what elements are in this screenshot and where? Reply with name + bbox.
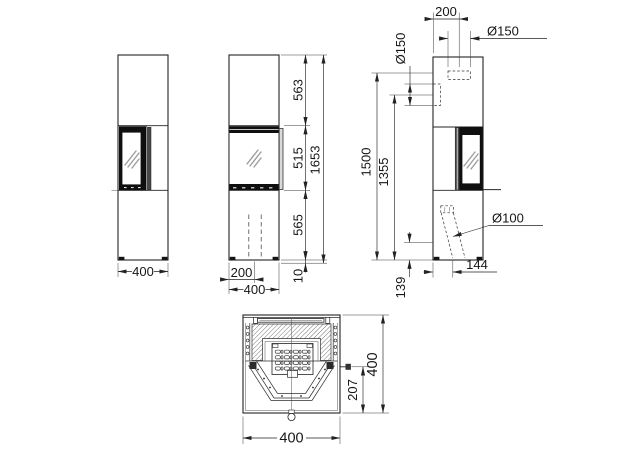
foot [434,257,440,260]
label-flue-top-diameter: Ø150 [487,24,519,39]
door-edge [279,129,283,190]
air-inlet-port [288,410,295,421]
label-flue-rear-diameter: Ø150 [393,33,408,65]
dim-plan-depth: 400 [365,352,381,376]
dim-flue-top-height: 1500 [359,148,374,177]
dim-front-height-bottom: 565 [291,214,306,236]
dim-front-height-top: 563 [291,79,306,101]
glass-pane [122,133,140,185]
glass-pane [462,135,479,183]
dim-front-width: 400 [244,282,266,297]
dim-side-a-width: 400 [132,264,154,279]
label-air-intake-diameter: Ø100 [492,211,524,226]
foot [119,257,125,260]
side-view-a: 400 [112,55,169,279]
dim-plan-damper-offset: 207 [345,379,360,401]
foot [273,257,279,260]
drawing-sheet: 400 [0,0,624,460]
glass-door [230,126,284,190]
technical-drawing-canvas: 400 [0,0,624,460]
dim-air-intake-offset: 144 [466,257,488,272]
foot [230,257,236,260]
foot [162,257,168,260]
dim-front-base-height: 10 [291,269,306,283]
dim-flue-top-offset: 200 [435,4,457,19]
dim-front-total-height: 1653 [308,146,323,175]
glass-door [455,127,482,190]
glass-door [119,126,151,190]
dim-plan-width: 400 [279,431,303,447]
dim-flue-rear-height: 1355 [376,158,391,187]
glass-pane [230,133,279,184]
grate [272,344,313,378]
dim-front-duct-offset: 200 [231,265,253,280]
dim-air-intake-height: 139 [393,277,408,299]
dim-front-height-middle: 515 [291,147,306,169]
